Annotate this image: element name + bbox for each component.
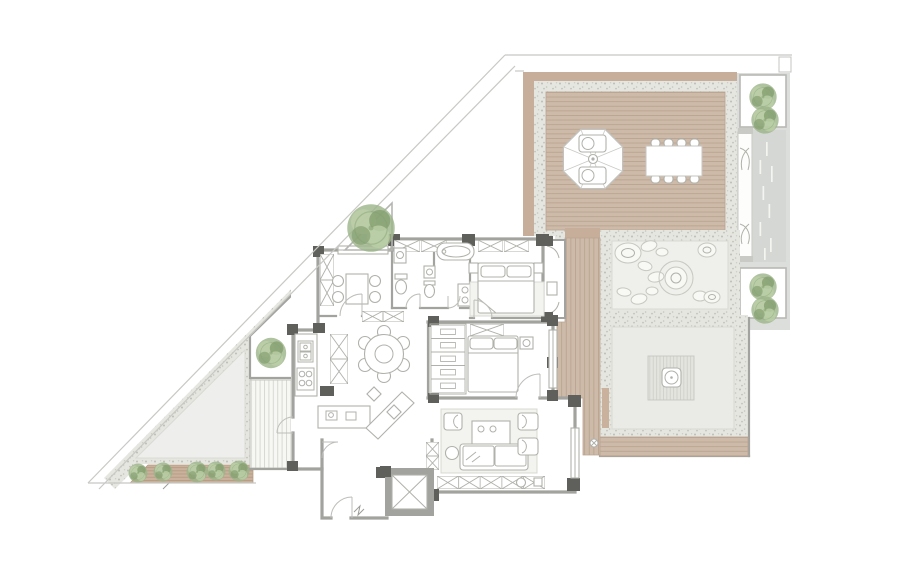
courtyard-bench: [602, 388, 609, 428]
toilet: [425, 285, 435, 298]
round-dining-table: [365, 335, 404, 374]
nightstand: [469, 263, 478, 273]
apartment: [277, 234, 581, 520]
corner-pillar: [779, 57, 791, 72]
outdoor-table: [646, 146, 702, 176]
side-table: [446, 447, 459, 460]
study-chair: [333, 292, 344, 303]
pillow: [507, 266, 531, 277]
courtyard: [600, 315, 749, 456]
master-balcony: [543, 240, 565, 318]
toilet: [396, 280, 407, 294]
balcony-table: [547, 282, 557, 295]
hall-cabinet: [426, 442, 439, 470]
terrace-lawn-panel: [136, 350, 245, 458]
pillow: [481, 266, 505, 277]
lounge-chair: [579, 135, 606, 152]
shrub-icon: [154, 463, 173, 482]
parasol-icon: [563, 129, 622, 188]
tree-icon: [751, 106, 778, 133]
armchair: [518, 413, 538, 430]
tree-icon: [347, 204, 395, 252]
floor-plan-canvas: [0, 0, 900, 568]
shrub-icon: [187, 462, 208, 483]
lounge-chair: [579, 167, 606, 184]
outdoor-dining-set: [646, 139, 702, 183]
elevator: [380, 466, 434, 516]
nightstand: [520, 337, 533, 349]
tv-console: [437, 476, 545, 489]
armchair: [444, 413, 462, 430]
sink: [424, 266, 435, 278]
living-room: [437, 409, 579, 489]
armchair: [518, 438, 538, 455]
tree-icon: [751, 296, 778, 323]
study-chair: [370, 292, 381, 303]
study-chair: [333, 276, 344, 287]
deck-frame-top: [523, 72, 737, 81]
coffee-table: [472, 421, 510, 444]
pillow: [470, 338, 493, 349]
master-bedroom: [469, 263, 544, 318]
study-chair: [370, 276, 381, 287]
shrub-icon: [207, 462, 226, 481]
deck-walkway-bottom: [600, 437, 748, 456]
floor-plan-drawing: [0, 0, 900, 568]
deck-detail-screw: [590, 439, 598, 447]
stripe-decking: [250, 380, 293, 468]
tree-icon: [256, 338, 286, 368]
deck-frame-left: [523, 81, 534, 240]
study-desk: [346, 274, 368, 304]
shrub-icon: [129, 464, 148, 483]
nightstand: [534, 263, 543, 273]
stepping-stone-path: [753, 130, 786, 262]
roof-deck: [523, 72, 737, 240]
sink: [394, 248, 406, 263]
pillow: [494, 338, 517, 349]
stone-garden: [600, 230, 740, 320]
shrub-icon: [229, 461, 250, 482]
